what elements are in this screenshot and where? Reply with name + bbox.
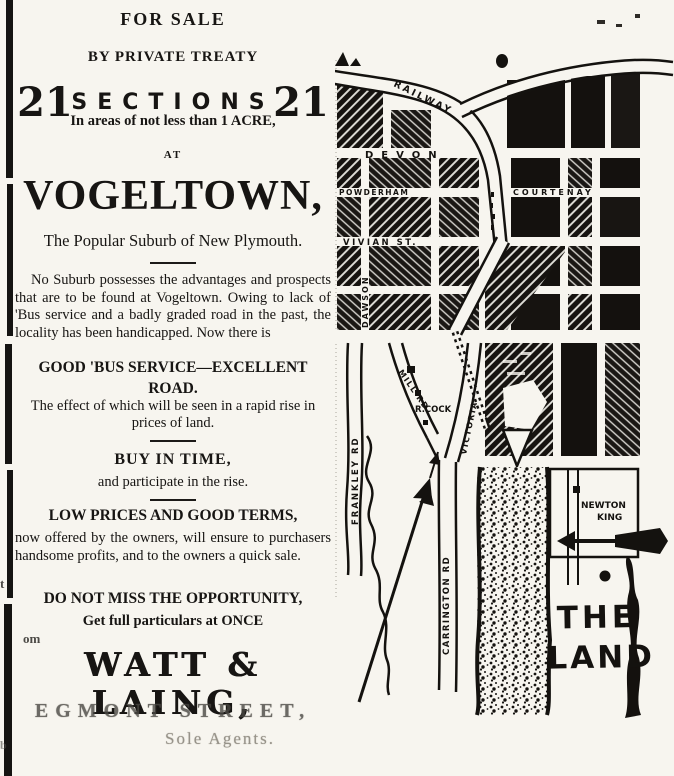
bus-service-line: GOOD 'BUS SERVICE—EXCELLENT ROAD. — [15, 358, 331, 400]
divider-rule — [15, 499, 331, 501]
the-land-line1: THE — [556, 599, 637, 636]
effect-line: The effect of which will be seen in a ra… — [15, 398, 331, 431]
low-prices-line: LOW PRICES AND GOOD TERMS, — [15, 507, 331, 525]
stray-ink-t: t — [0, 576, 4, 592]
devon-street-label: DEVON — [365, 150, 445, 161]
participate-line: and participate in the rise. — [15, 474, 331, 491]
speckle-strip — [477, 467, 550, 715]
left-column-rule — [5, 344, 12, 464]
agency-role: Sole Agents. — [110, 729, 330, 749]
coast-line — [460, 60, 673, 117]
left-column-rule — [6, 0, 13, 178]
paragraph-owners: now offered by the owners, will ensure t… — [15, 530, 331, 565]
stray-ink-om: om — [23, 631, 40, 647]
newton-king-label-line1: NEWTON — [581, 501, 626, 511]
dawson-street-label: DAWSON — [361, 275, 370, 328]
left-column-rule — [7, 184, 13, 336]
buy-in-time-line: BUY IN TIME, — [15, 451, 331, 469]
suburb-line: The Popular Suburb of New Plymouth. — [15, 232, 331, 251]
courtenay-street-label: COURTENAY — [513, 188, 594, 197]
ragged-border — [625, 556, 641, 718]
stray-ink-b: b — [0, 738, 7, 753]
divider-rule — [15, 440, 331, 442]
left-arrow — [557, 528, 668, 554]
left-column-rule — [7, 470, 13, 598]
victoria-road-label: VICTORIA — [459, 400, 479, 455]
frankley-road-label: FRANKLEY RD — [351, 436, 361, 525]
carrington-road-label: CARRINGTON RD — [442, 556, 452, 655]
rcock-label: R.COCK — [415, 405, 452, 415]
for-sale-heading: FOR SALE — [15, 9, 331, 30]
the-land-line2: LAND — [547, 639, 655, 677]
agency-street: EGMONT STREET, — [15, 700, 331, 723]
creek-line — [366, 436, 389, 695]
divider-rule — [15, 262, 331, 264]
at-word: AT — [15, 149, 331, 162]
newspaper-advertisement: FOR SALE BY PRIVATE TREATY 21 SECTIONS 2… — [0, 0, 674, 776]
opportunity-line: DO NOT MISS THE OPPORTUNITY, — [15, 590, 331, 608]
vivian-street-label: VIVIAN ST. — [343, 238, 418, 248]
areas-line: In areas of not less than 1 ACRE, — [15, 113, 331, 130]
vogeltown-map: DEVON POWDERHAM COURTENAY VIVIAN ST. DAW… — [335, 0, 674, 730]
paragraph-advantages: No Suburb possesses the advantages and p… — [15, 272, 331, 343]
newton-king-label-line2: KING — [597, 513, 622, 523]
town-name-heading: VOGELTOWN, — [15, 172, 331, 220]
private-treaty-line: BY PRIVATE TREATY — [15, 49, 331, 66]
newton-king-block — [550, 469, 638, 585]
particulars-line: Get full particulars at ONCE — [15, 613, 331, 630]
powderham-street-label: POWDERHAM — [339, 188, 409, 197]
